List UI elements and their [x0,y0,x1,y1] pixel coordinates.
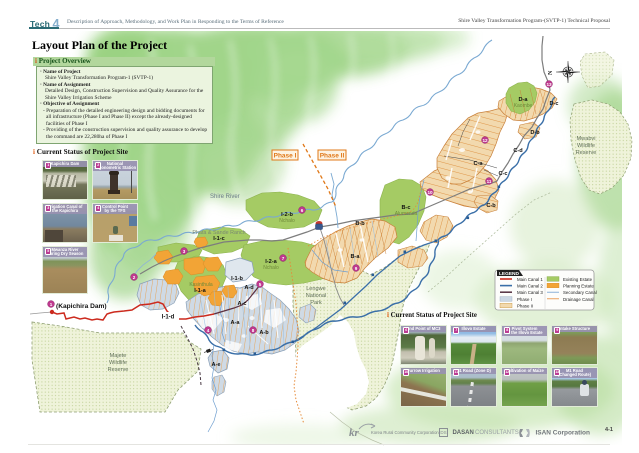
svg-text:Phase II: Phase II [320,153,345,160]
svg-text:Park: Park [310,300,322,306]
svg-text:Main Canal 3: Main Canal 3 [517,290,543,295]
svg-text:Phase I: Phase I [274,153,297,160]
svg-text:Wildlife: Wildlife [577,143,595,149]
svg-text:A-a: A-a [230,320,240,326]
svg-text:Existing Estate: Existing Estate [563,277,593,282]
svg-text:Lengwe: Lengwe [306,286,326,292]
svg-text:8: 8 [252,328,255,333]
svg-text:D-c: D-c [549,101,558,107]
svg-text:I-1-a: I-1-a [194,288,206,294]
svg-text:Nchalo: Nchalo [263,265,279,271]
svg-text:Reserve: Reserve [576,150,597,156]
svg-text:Main Canal 1: Main Canal 1 [517,277,543,282]
svg-text:Planning Estate: Planning Estate [563,284,594,289]
svg-text:A-b: A-b [259,330,269,336]
svg-text:Mwabvi: Mwabvi [577,136,596,142]
svg-text:National: National [306,293,327,299]
svg-text:C-c: C-c [498,171,507,177]
svg-text:Reserve: Reserve [108,367,129,373]
svg-text:A-e: A-e [211,362,220,368]
svg-text:2: 2 [133,275,136,280]
svg-text:N: N [548,70,554,75]
svg-text:1: 1 [50,302,53,307]
svg-text:C-b: C-b [486,203,496,209]
svg-text:11: 11 [487,179,492,184]
svg-text:(Kapichira Dam): (Kapichira Dam) [56,303,107,310]
svg-text:A-d: A-d [244,285,254,291]
svg-text:Nchalo: Nchalo [279,218,295,224]
svg-text:I-1-c: I-1-c [213,236,225,242]
svg-text:B-b: B-b [355,221,365,227]
svg-text:Drainage Canal: Drainage Canal [563,297,594,302]
svg-text:4: 4 [207,328,210,333]
svg-text:I-1-b: I-1-b [231,276,243,282]
svg-text:Phase II: Phase II [517,303,533,308]
svg-text:Main Canal 2: Main Canal 2 [517,284,543,289]
svg-text:13: 13 [546,82,552,87]
svg-text:Phase I: Phase I [517,297,532,302]
svg-text:D-b: D-b [530,130,540,136]
svg-text:C-d: C-d [513,148,523,154]
svg-text:Wildlife: Wildlife [109,360,127,366]
svg-text:B-a: B-a [350,254,360,260]
svg-text:I-1-d: I-1-d [162,315,175,321]
svg-text:Alumenda: Alumenda [395,211,418,217]
svg-text:Majete: Majete [110,353,127,359]
svg-text:5: 5 [259,282,262,287]
svg-text:3: 3 [183,249,186,254]
svg-text:6: 6 [301,208,304,213]
svg-text:Kaombe: Kaombe [514,103,533,109]
svg-text:7: 7 [282,256,285,261]
svg-text:10: 10 [427,190,433,195]
svg-text:A-c: A-c [237,301,246,307]
svg-text:Kasinthula: Kasinthula [189,282,213,288]
svg-text:Secondary Canal: Secondary Canal [563,290,597,295]
svg-text:9: 9 [355,266,358,271]
svg-text:Shire River: Shire River [210,194,240,200]
svg-text:12: 12 [482,138,488,143]
svg-text:C-a: C-a [473,161,483,167]
